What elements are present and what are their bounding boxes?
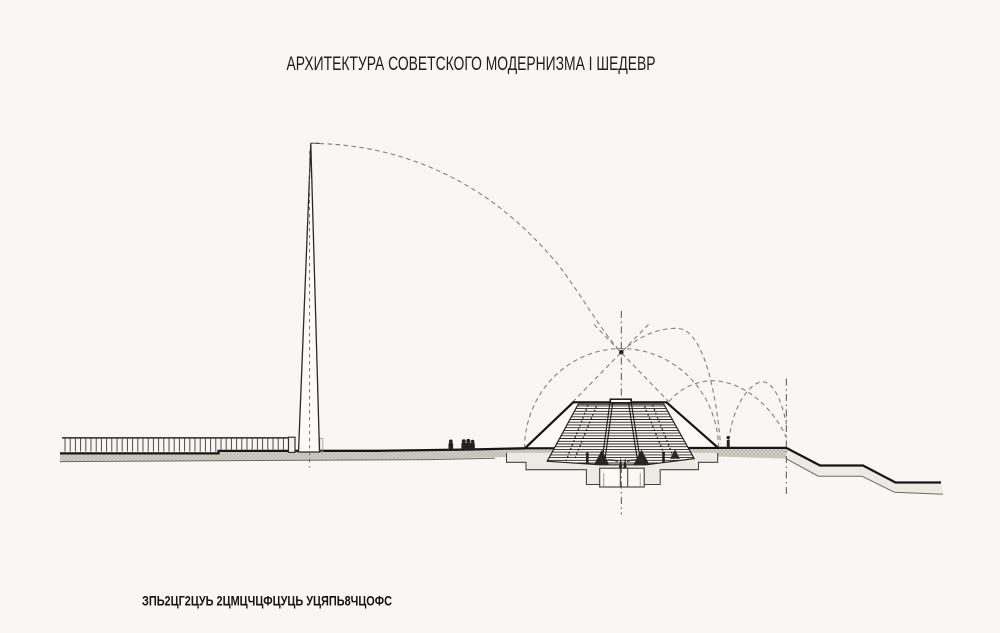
svg-text:ЗПЬ2ЦГ2ЦУЬ 2ЦМЦЧЦФЦУЦЬ УЦЯПЬ8Ч: ЗПЬ2ЦГ2ЦУЬ 2ЦМЦЧЦФЦУЦЬ УЦЯПЬ8ЧЦОФС bbox=[142, 594, 392, 609]
svg-text:АРХИТЕКТУРА СОВЕТСКОГО МОДЕРНИ: АРХИТЕКТУРА СОВЕТСКОГО МОДЕРНИЗМА І ШЕДЕ… bbox=[287, 53, 656, 75]
